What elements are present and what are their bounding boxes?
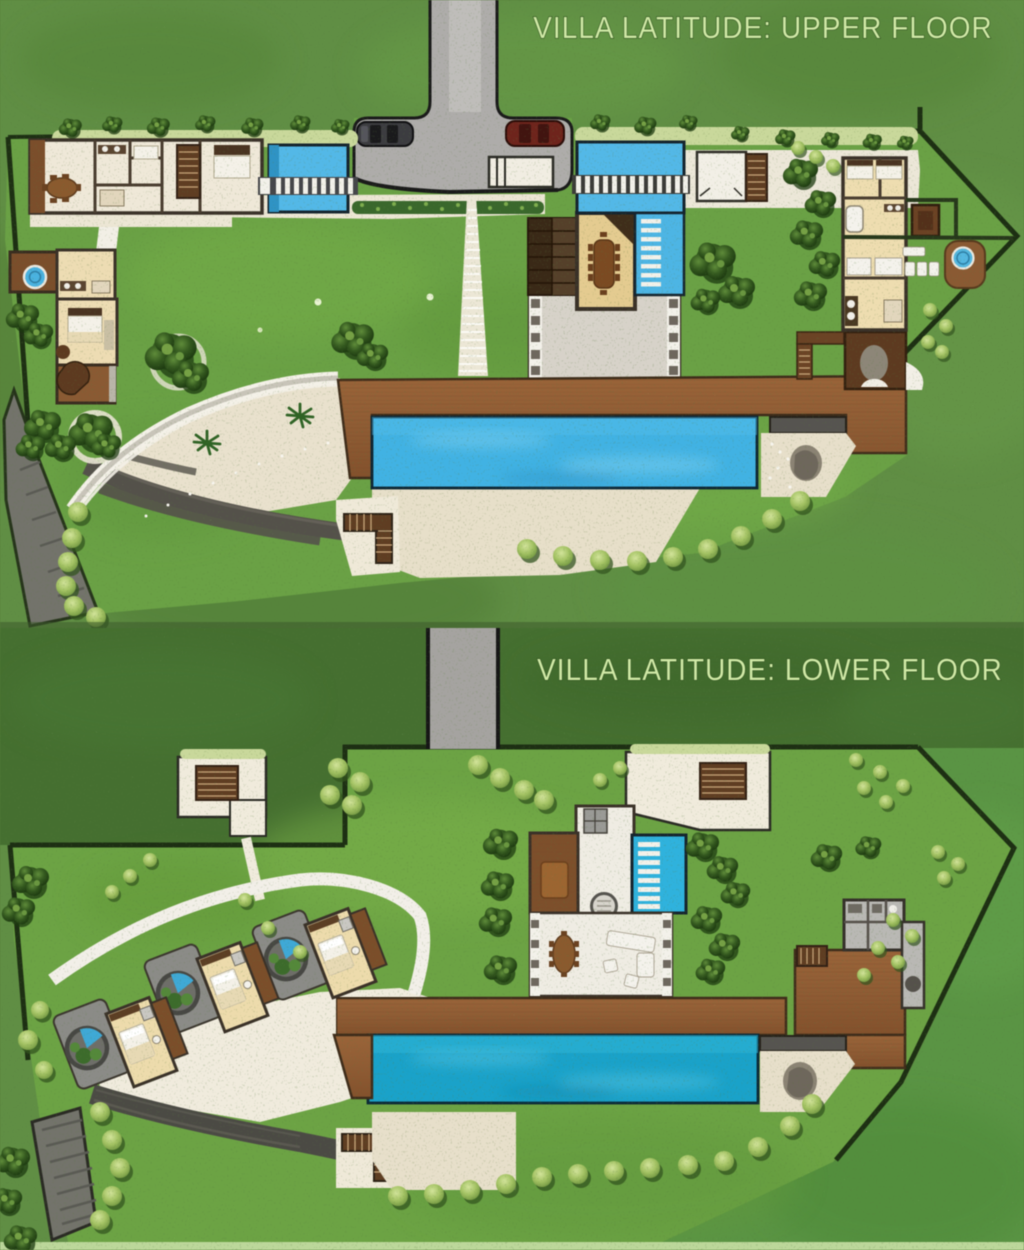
svg-text:VILLA LATITUDE: LOWER FLOOR: VILLA LATITUDE: LOWER FLOOR <box>537 653 1003 688</box>
svg-text:VILLA LATITUDE: UPPER FLOOR: VILLA LATITUDE: UPPER FLOOR <box>533 11 993 46</box>
